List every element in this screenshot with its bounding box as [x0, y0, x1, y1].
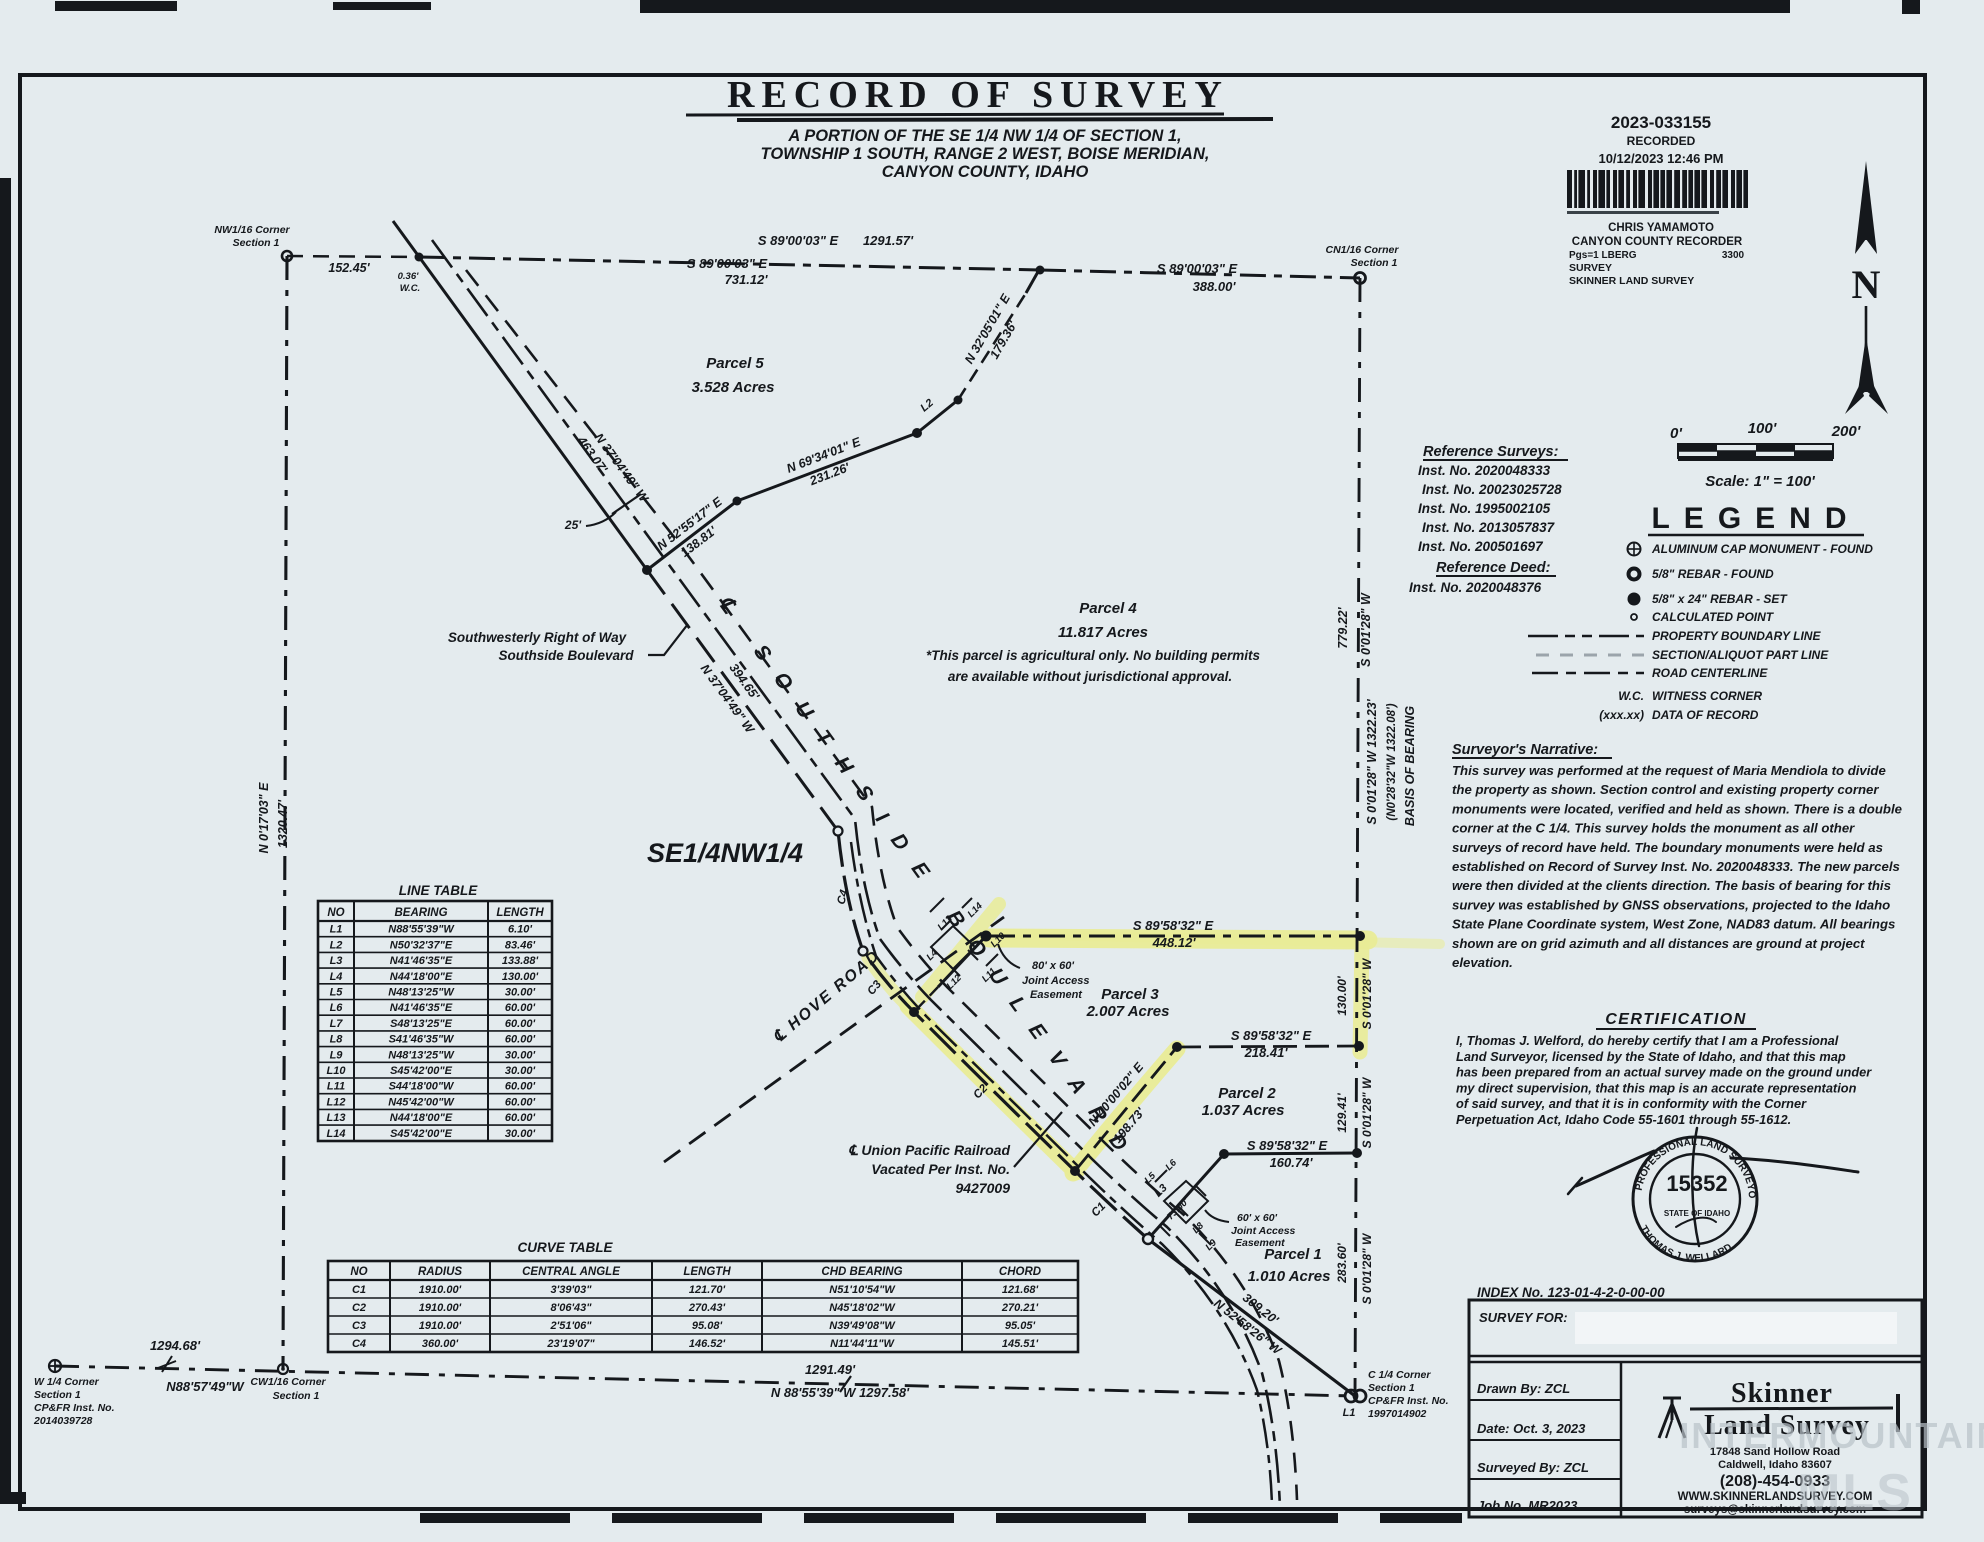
- svg-text:S 0'01'28" W: S 0'01'28" W: [1360, 1232, 1374, 1304]
- svg-text:This survey was performed at t: This survey was performed at the request…: [1452, 763, 1886, 778]
- svg-text:11.817 Acres: 11.817 Acres: [1058, 624, 1148, 641]
- svg-text:1.010 Acres: 1.010 Acres: [1248, 1268, 1331, 1285]
- svg-text:S48'13'25"E: S48'13'25"E: [390, 1018, 452, 1030]
- svg-text:has been prepared from an actu: has been prepared from an actual survey …: [1456, 1065, 1872, 1080]
- svg-text:Vacated Per Inst. No.: Vacated Per Inst. No.: [871, 1161, 1010, 1177]
- svg-text:283.60': 283.60': [1335, 1242, 1349, 1284]
- svg-text:N48'13'25"W: N48'13'25"W: [388, 987, 455, 999]
- svg-text:C3: C3: [352, 1320, 366, 1332]
- svg-text:CP&FR Inst. No.: CP&FR Inst. No.: [34, 1402, 115, 1414]
- svg-text:shown are on grid azimuth and: shown are on grid azimuth and all distan…: [1452, 936, 1865, 951]
- svg-text:CHRIS YAMAMOTO: CHRIS YAMAMOTO: [1608, 222, 1714, 234]
- svg-text:Joint Access: Joint Access: [1022, 975, 1089, 987]
- svg-text:121.70': 121.70': [689, 1284, 726, 1296]
- svg-text:Section 1: Section 1: [1368, 1382, 1415, 1394]
- svg-text:CENTRAL ANGLE: CENTRAL ANGLE: [522, 1266, 620, 1278]
- svg-text:L2: L2: [330, 939, 343, 951]
- svg-text:Parcel 4: Parcel 4: [1079, 600, 1137, 617]
- svg-text:6.10': 6.10': [508, 924, 532, 936]
- svg-text:surveys of record have held.: surveys of record have held. The boundar…: [1452, 840, 1883, 855]
- svg-text:L7: L7: [330, 1018, 344, 1030]
- svg-text:2023-033155: 2023-033155: [1611, 113, 1711, 132]
- svg-text:N39'49'08"W: N39'49'08"W: [829, 1320, 896, 1332]
- svg-text:N45'42'00"W: N45'42'00"W: [388, 1096, 455, 1108]
- svg-text:L6: L6: [330, 1002, 344, 1014]
- svg-text:10/12/2023 12:46 PM: 10/12/2023 12:46 PM: [1598, 151, 1723, 166]
- svg-text:448.12': 448.12': [1152, 935, 1197, 950]
- svg-text:130.00': 130.00': [502, 971, 539, 983]
- svg-text:2014039728: 2014039728: [33, 1415, 93, 1427]
- svg-text:I, Thomas J. Welford, do hereb: I, Thomas J. Welford, do hereby certify …: [1456, 1033, 1839, 1048]
- svg-text:my direct supervision, that th: my direct supervision, that this map is …: [1456, 1080, 1857, 1095]
- svg-text:Job No. MR2023: Job No. MR2023: [1477, 1498, 1578, 1513]
- svg-text:152.45': 152.45': [328, 261, 370, 275]
- svg-text:Surveyed By: ZCL: Surveyed By: ZCL: [1477, 1460, 1589, 1475]
- svg-text:S 89'58'32" E: S 89'58'32" E: [1231, 1028, 1312, 1043]
- svg-text:NW1/16 Corner: NW1/16 Corner: [214, 224, 290, 236]
- svg-text:N48'13'25"W: N48'13'25"W: [388, 1049, 455, 1061]
- svg-text:1.037 Acres: 1.037 Acres: [1202, 1102, 1285, 1119]
- svg-text:S45'42'00"E: S45'42'00"E: [390, 1065, 452, 1077]
- svg-text:5/8" x 24" REBAR - SET: 5/8" x 24" REBAR - SET: [1652, 592, 1788, 606]
- svg-text:SURVEY FOR:: SURVEY FOR:: [1479, 1310, 1568, 1325]
- svg-text:STATE OF IDAHO: STATE OF IDAHO: [1664, 1209, 1730, 1218]
- svg-text:23'19'07": 23'19'07": [546, 1338, 595, 1350]
- svg-text:731.12': 731.12': [725, 272, 769, 287]
- svg-text:360.00': 360.00': [422, 1338, 459, 1350]
- svg-text:30.00': 30.00': [505, 1128, 536, 1140]
- svg-text:S 0'01'28" W 1322.23': S 0'01'28" W 1322.23': [1365, 698, 1379, 824]
- svg-text:95.05': 95.05': [1005, 1320, 1036, 1332]
- svg-text:S44'18'00"W: S44'18'00"W: [389, 1081, 455, 1093]
- svg-text:Inst. No. 2020048376: Inst. No. 2020048376: [1409, 580, 1542, 595]
- svg-text:C 1/4 Corner: C 1/4 Corner: [1368, 1369, 1431, 1381]
- svg-text:0.36': 0.36': [398, 271, 419, 282]
- svg-text:Section 1: Section 1: [1351, 257, 1398, 269]
- svg-text:W.C.: W.C.: [1618, 689, 1644, 703]
- svg-text:NO: NO: [350, 1266, 367, 1278]
- svg-text:CALCULATED POINT: CALCULATED POINT: [1652, 610, 1775, 624]
- svg-text:1291.49': 1291.49': [805, 1362, 856, 1377]
- svg-text:S 89'00'03" E: S 89'00'03" E: [1157, 261, 1238, 276]
- svg-text:of said survey, and that it is: of said survey, and that it is in confor…: [1456, 1096, 1807, 1111]
- svg-text:60.00': 60.00': [505, 1018, 536, 1030]
- svg-text:L5: L5: [330, 987, 344, 999]
- svg-text:SECTION/ALIQUOT PART LINE: SECTION/ALIQUOT PART LINE: [1652, 648, 1829, 662]
- svg-text:Inst. No. 200501697: Inst. No. 200501697: [1418, 539, 1544, 554]
- svg-text:60.00': 60.00': [505, 1096, 536, 1108]
- svg-text:1910.00': 1910.00': [419, 1284, 462, 1296]
- svg-text:RADIUS: RADIUS: [418, 1266, 462, 1278]
- svg-text:CANYON COUNTY RECORDER: CANYON COUNTY RECORDER: [1572, 236, 1743, 248]
- svg-text:SKINNER LAND SURVEY: SKINNER LAND SURVEY: [1569, 275, 1694, 287]
- svg-text:Pgs=1 LBERG: Pgs=1 LBERG: [1569, 250, 1637, 261]
- svg-text:Parcel 1: Parcel 1: [1264, 1246, 1322, 1263]
- svg-text:80' x 60': 80' x 60': [1032, 960, 1074, 972]
- svg-text:A PORTION OF THE SE 1/4 NW 1/4: A PORTION OF THE SE 1/4 NW 1/4 OF SECTIO…: [787, 127, 1181, 145]
- svg-text:S41'46'35"W: S41'46'35"W: [389, 1034, 455, 1046]
- svg-text:corner at the C 1/4. This sur: corner at the C 1/4. This survey holds t…: [1452, 821, 1855, 836]
- svg-text:ROAD CENTERLINE: ROAD CENTERLINE: [1652, 666, 1768, 680]
- svg-text:388.00': 388.00': [1193, 279, 1237, 294]
- svg-text:*This parcel is agricultural o: *This parcel is agricultural only. No bu…: [926, 648, 1261, 663]
- svg-text:W.C.: W.C.: [400, 283, 420, 294]
- svg-text:SE1/4NW1/4: SE1/4NW1/4: [647, 838, 803, 868]
- svg-text:S 0'01'28" W: S 0'01'28" W: [1360, 1076, 1374, 1148]
- svg-text:INTERMOUNTAIN: INTERMOUNTAIN: [1679, 1415, 1984, 1456]
- svg-text:DATA OF RECORD: DATA OF RECORD: [1652, 708, 1759, 722]
- svg-text:elevation.: elevation.: [1452, 955, 1513, 970]
- svg-text:N 0'17'03" E: N 0'17'03" E: [257, 782, 271, 854]
- svg-text:N51'10'54"W: N51'10'54"W: [829, 1284, 896, 1296]
- svg-text:30.00': 30.00': [505, 1065, 536, 1077]
- svg-text:9427009: 9427009: [955, 1180, 1010, 1196]
- svg-text:CURVE TABLE: CURVE TABLE: [517, 1240, 613, 1255]
- svg-text:200': 200': [1831, 423, 1861, 440]
- svg-text:BASIS OF BEARING: BASIS OF BEARING: [1403, 706, 1417, 826]
- svg-text:Perpetuation Act, Idaho Code 5: Perpetuation Act, Idaho Code 55-1601 thr…: [1456, 1112, 1791, 1127]
- svg-text:LINE TABLE: LINE TABLE: [399, 883, 478, 898]
- svg-text:218.41': 218.41': [1244, 1045, 1289, 1060]
- svg-text:C1: C1: [352, 1284, 366, 1296]
- svg-text:Easement: Easement: [1030, 989, 1083, 1001]
- svg-text:129.41': 129.41': [1335, 1092, 1349, 1133]
- svg-text:CW1/16 Corner: CW1/16 Corner: [250, 1376, 326, 1388]
- svg-text:BEARING: BEARING: [394, 907, 447, 919]
- svg-text:monuments were located, verifi: monuments were located, verified and hel…: [1452, 801, 1902, 816]
- svg-text:CHD BEARING: CHD BEARING: [821, 1266, 902, 1278]
- svg-text:N41'46'35"E: N41'46'35"E: [390, 955, 453, 967]
- svg-text:S 0'01'28" W: S 0'01'28" W: [1359, 592, 1373, 667]
- svg-text:LENGTH: LENGTH: [683, 1266, 731, 1278]
- svg-text:Date: Oct. 3, 2023: Date: Oct. 3, 2023: [1477, 1421, 1586, 1436]
- svg-text:were then divided at the clien: were then divided at the clients directi…: [1452, 878, 1891, 893]
- svg-text:(N0'28'32"W 1322.08'): (N0'28'32"W 1322.08'): [1386, 703, 1398, 820]
- svg-text:130.00': 130.00': [1335, 975, 1349, 1016]
- svg-text:S 89'00'03" E: S 89'00'03" E: [758, 233, 839, 248]
- svg-text:L3: L3: [330, 955, 343, 967]
- svg-text:60' x 60': 60' x 60': [1237, 1212, 1278, 1224]
- svg-text:Section 1: Section 1: [233, 237, 280, 249]
- svg-text:Inst. No. 2020048333: Inst. No. 2020048333: [1418, 463, 1551, 478]
- svg-text:SURVEY: SURVEY: [1569, 262, 1612, 274]
- svg-text:Parcel 3: Parcel 3: [1101, 986, 1159, 1003]
- svg-text:2'51'06": 2'51'06": [549, 1320, 592, 1332]
- svg-text:S 89'00'03" E: S 89'00'03" E: [687, 256, 768, 271]
- svg-text:5/8" REBAR - FOUND: 5/8" REBAR - FOUND: [1652, 567, 1774, 581]
- svg-text:MLS: MLS: [1797, 1464, 1913, 1522]
- svg-text:C2: C2: [352, 1302, 366, 1314]
- svg-text:25': 25': [564, 518, 582, 532]
- svg-text:1910.00': 1910.00': [419, 1320, 462, 1332]
- svg-text:N44'18'00"E: N44'18'00"E: [390, 1112, 453, 1124]
- svg-text:N11'44'11"W: N11'44'11"W: [830, 1338, 895, 1350]
- svg-text:Inst. No. 2013057837: Inst. No. 2013057837: [1422, 520, 1556, 535]
- svg-text:30.00': 30.00': [505, 987, 536, 999]
- svg-text:83.46': 83.46': [505, 939, 536, 951]
- svg-text:CANYON COUNTY, IDAHO: CANYON COUNTY, IDAHO: [882, 163, 1089, 181]
- svg-text:N45'18'02"W: N45'18'02"W: [829, 1302, 896, 1314]
- svg-text:State Plane Coordinate system,: State Plane Coordinate system, West Zone…: [1452, 917, 1895, 932]
- svg-text:(xxx.xx): (xxx.xx): [1599, 708, 1644, 722]
- svg-text:Southwesterly Right of Way: Southwesterly Right of Way: [448, 630, 628, 645]
- svg-text:N88'55'39"W: N88'55'39"W: [388, 924, 455, 936]
- svg-text:LEGEND: LEGEND: [1651, 502, 1860, 535]
- svg-text:L10: L10: [327, 1065, 347, 1077]
- svg-text:8'06'43": 8'06'43": [550, 1302, 592, 1314]
- svg-text:N88'57'49"W: N88'57'49"W: [166, 1379, 245, 1394]
- svg-text:15352: 15352: [1666, 1171, 1727, 1196]
- svg-text:CP&FR Inst. No.: CP&FR Inst. No.: [1368, 1395, 1449, 1407]
- svg-text:N44'18'00"E: N44'18'00"E: [390, 971, 453, 983]
- svg-text:N: N: [1852, 262, 1881, 307]
- svg-text:60.00': 60.00': [505, 1112, 536, 1124]
- svg-text:Section 1: Section 1: [273, 1390, 320, 1402]
- svg-text:Scale: 1" = 100': Scale: 1" = 100': [1705, 473, 1815, 490]
- svg-text:CN1/16 Corner: CN1/16 Corner: [1326, 244, 1400, 256]
- svg-text:270.21': 270.21': [1001, 1302, 1039, 1314]
- svg-text:W 1/4 Corner: W 1/4 Corner: [34, 1376, 100, 1388]
- svg-text:Section 1: Section 1: [34, 1389, 81, 1401]
- svg-text:LENGTH: LENGTH: [496, 907, 544, 919]
- svg-text:L1: L1: [1343, 1407, 1356, 1419]
- svg-text:RECORD OF SURVEY: RECORD OF SURVEY: [727, 74, 1229, 116]
- svg-text:3300: 3300: [1722, 250, 1745, 261]
- svg-text:60.00': 60.00': [505, 1002, 536, 1014]
- svg-text:Joint Access: Joint Access: [1231, 1225, 1296, 1237]
- svg-text:121.68': 121.68': [1002, 1284, 1039, 1296]
- svg-text:Inst. No. 20023025728: Inst. No. 20023025728: [1422, 482, 1562, 497]
- svg-text:Parcel 2: Parcel 2: [1218, 1085, 1276, 1102]
- svg-text:L13: L13: [327, 1112, 346, 1124]
- svg-text:0': 0': [1670, 425, 1682, 442]
- svg-text:C4: C4: [352, 1338, 366, 1350]
- svg-text:60.00': 60.00': [505, 1034, 536, 1046]
- svg-text:2.007 Acres: 2.007 Acres: [1086, 1003, 1170, 1020]
- svg-text:60.00': 60.00': [505, 1081, 536, 1093]
- svg-text:established on Record of Surve: established on Record of Survey Inst. No…: [1452, 859, 1900, 874]
- svg-text:L8: L8: [330, 1034, 344, 1046]
- svg-text:146.52': 146.52': [689, 1338, 726, 1350]
- svg-text:100': 100': [1748, 420, 1777, 437]
- svg-text:N 88'55'39" W 1297.58': N 88'55'39" W 1297.58': [771, 1385, 910, 1400]
- svg-text:TOWNSHIP 1 SOUTH, RANGE 2 WEST: TOWNSHIP 1 SOUTH, RANGE 2 WEST, BOISE ME…: [761, 145, 1210, 163]
- svg-text:779.22': 779.22': [1336, 606, 1350, 648]
- svg-text:1320.47': 1320.47': [276, 799, 290, 848]
- svg-text:Reference Deed:: Reference Deed:: [1436, 560, 1551, 576]
- svg-text:PROPERTY BOUNDARY LINE: PROPERTY BOUNDARY LINE: [1652, 629, 1821, 643]
- svg-text:Drawn By: ZCL: Drawn By: ZCL: [1477, 1381, 1570, 1396]
- svg-text:1291.57': 1291.57': [863, 233, 914, 248]
- svg-text:L4: L4: [330, 971, 343, 983]
- svg-text:the property as shown. Sectio: the property as shown. Section control a…: [1452, 782, 1879, 797]
- svg-text:Surveyor's Narrative:: Surveyor's Narrative:: [1452, 742, 1598, 758]
- svg-text:survey was established by GNSS: survey was established by GNSS observati…: [1452, 897, 1890, 912]
- svg-text:30.00': 30.00': [505, 1049, 536, 1061]
- svg-text:L14: L14: [327, 1128, 346, 1140]
- svg-text:L12: L12: [327, 1096, 346, 1108]
- svg-text:CHORD: CHORD: [999, 1266, 1041, 1278]
- svg-text:ALUMINUM CAP MONUMENT - FOUND: ALUMINUM CAP MONUMENT - FOUND: [1651, 542, 1873, 556]
- svg-text:S 89'58'32" E: S 89'58'32" E: [1247, 1138, 1328, 1153]
- svg-text:95.08': 95.08': [692, 1320, 723, 1332]
- svg-text:270.43': 270.43': [688, 1302, 726, 1314]
- svg-text:S45'42'00"E: S45'42'00"E: [390, 1128, 452, 1140]
- svg-text:L9: L9: [330, 1049, 344, 1061]
- svg-text:L1: L1: [330, 924, 343, 936]
- svg-text:Inst. No. 1995002105: Inst. No. 1995002105: [1418, 501, 1551, 516]
- svg-text:1997014902: 1997014902: [1368, 1408, 1427, 1420]
- svg-text:1294.68': 1294.68': [150, 1338, 201, 1353]
- svg-text:Southside Boulevard: Southside Boulevard: [498, 648, 634, 663]
- svg-text:℄ Union Pacific Railroad: ℄ Union Pacific Railroad: [849, 1142, 1011, 1158]
- svg-text:N50'32'37"E: N50'32'37"E: [390, 939, 453, 951]
- svg-text:L11: L11: [327, 1081, 345, 1093]
- svg-text:133.88': 133.88': [502, 955, 539, 967]
- svg-text:3'39'03": 3'39'03": [550, 1284, 592, 1296]
- svg-text:NO: NO: [327, 907, 344, 919]
- svg-text:S 89'58'32" E: S 89'58'32" E: [1133, 918, 1214, 933]
- svg-text:Parcel 5: Parcel 5: [706, 355, 764, 372]
- svg-text:Reference Surveys:: Reference Surveys:: [1423, 444, 1559, 460]
- svg-text:WITNESS CORNER: WITNESS CORNER: [1652, 689, 1762, 703]
- svg-text:RECORDED: RECORDED: [1627, 134, 1696, 148]
- svg-text:N41'46'35"E: N41'46'35"E: [390, 1002, 453, 1014]
- svg-text:S 0'01'28" W: S 0'01'28" W: [1360, 957, 1374, 1029]
- svg-text:145.51': 145.51': [1002, 1338, 1039, 1350]
- svg-text:are available without jurisdic: are available without jurisdictional app…: [948, 669, 1232, 684]
- svg-text:INDEX No. 123-01-4-2-0-00-00: INDEX No. 123-01-4-2-0-00-00: [1477, 1285, 1665, 1300]
- svg-text:CERTIFICATION: CERTIFICATION: [1605, 1011, 1747, 1028]
- svg-text:3.528 Acres: 3.528 Acres: [692, 379, 775, 396]
- svg-text:1910.00': 1910.00': [419, 1302, 462, 1314]
- svg-text:Land Surveyor, licensed by the: Land Surveyor, licensed by the State of …: [1456, 1049, 1846, 1064]
- svg-text:Skinner: Skinner: [1731, 1378, 1833, 1409]
- svg-text:160.74': 160.74': [1270, 1155, 1314, 1170]
